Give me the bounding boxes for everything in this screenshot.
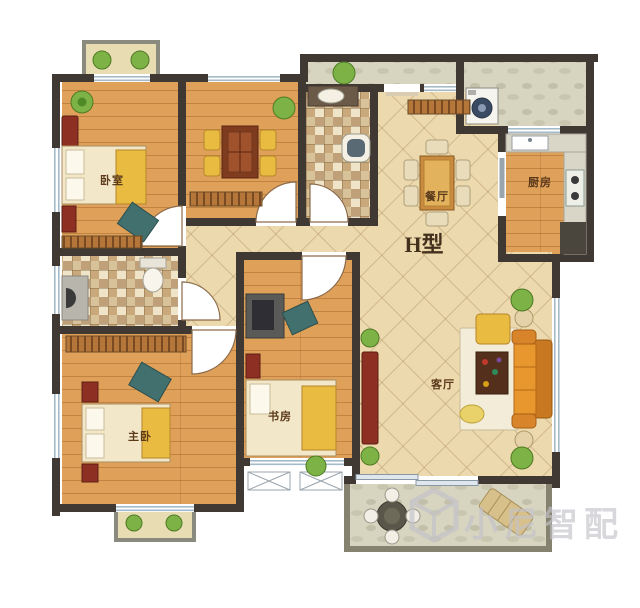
bathtub [342, 134, 370, 162]
layout-type-label: H型 [404, 232, 443, 257]
bed [82, 404, 170, 462]
dining-label: 餐厅 [424, 189, 449, 203]
plant-icon [93, 51, 111, 69]
master-bedroom-label: 主卧 [128, 429, 152, 443]
plant-icon [126, 515, 142, 531]
plant-icon [306, 456, 326, 476]
bedroom-label: 卧室 [100, 173, 124, 187]
tv-desk [246, 294, 284, 338]
window-sill-marks [248, 472, 342, 490]
fridge [560, 222, 586, 254]
nightstand [82, 464, 98, 482]
washing-machine-icon [466, 88, 498, 124]
side-table [515, 431, 533, 449]
sofa [512, 330, 552, 428]
floor-plan-canvas: 卧室 厨房 [0, 0, 640, 608]
plant-icon [361, 447, 379, 465]
side-table [515, 309, 533, 327]
hall-floor [186, 226, 378, 252]
sideboard [190, 192, 262, 206]
living-label: 客厅 [430, 377, 455, 391]
plant-icon [273, 97, 295, 119]
nightstand [246, 354, 260, 378]
sideboard [408, 100, 470, 114]
coffee-table [476, 352, 508, 394]
watermark-text: 小尼智配 [464, 506, 624, 544]
plant-icon [511, 447, 533, 469]
plant-icon [361, 329, 379, 347]
plant-icon [166, 515, 182, 531]
pouf [460, 405, 484, 423]
study-label: 书房 [268, 409, 292, 423]
entry-balcony-floor [306, 62, 456, 84]
kitchen-sliding-door [500, 158, 505, 198]
nightstand [82, 382, 98, 402]
floor-plan-drawing: 卧室 厨房 [0, 0, 640, 608]
kitchen-label: 厨房 [528, 175, 552, 189]
north-flower-bed [84, 42, 158, 78]
entrance-step [386, 92, 418, 96]
stove-icon [566, 170, 584, 206]
wardrobe [66, 336, 186, 352]
tv-cabinet [362, 352, 378, 444]
plant-icon [131, 51, 149, 69]
wardrobe [62, 236, 142, 248]
nightstand [62, 206, 76, 232]
armchair [476, 314, 510, 344]
plant-icon [511, 289, 533, 311]
plant-icon [333, 62, 355, 84]
entrance-opening [384, 84, 420, 92]
sink [318, 89, 344, 103]
